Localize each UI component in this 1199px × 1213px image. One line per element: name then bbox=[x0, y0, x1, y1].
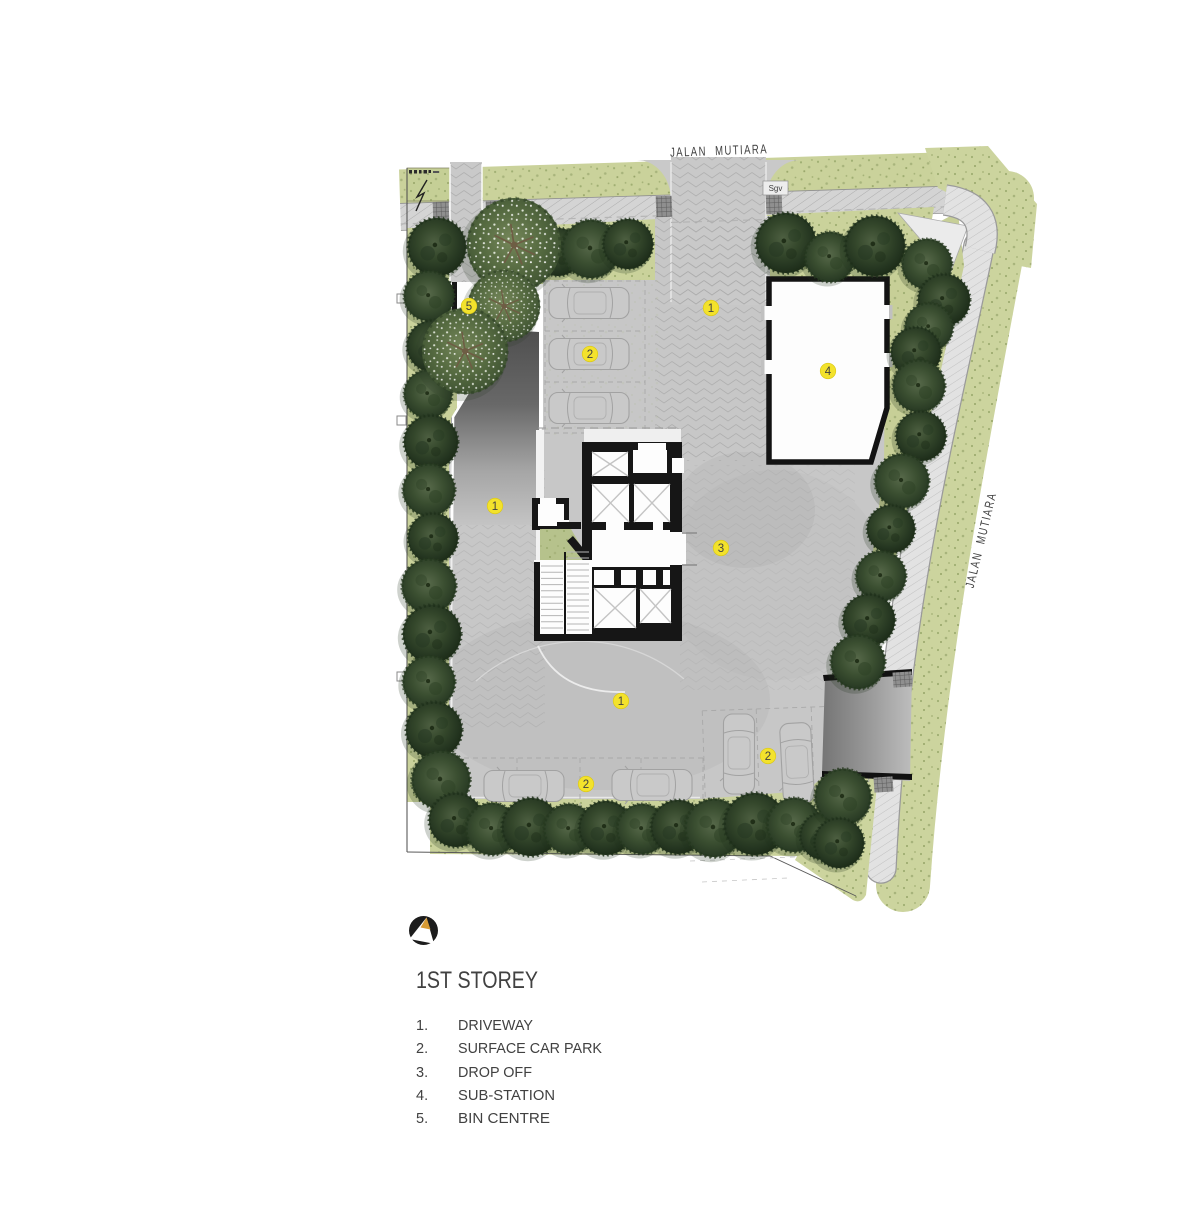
svg-text:4.: 4. bbox=[416, 1088, 428, 1104]
svg-text:DROP OFF: DROP OFF bbox=[458, 1065, 532, 1081]
svg-text:1.: 1. bbox=[416, 1018, 428, 1034]
svg-text:1: 1 bbox=[708, 303, 714, 315]
svg-text:1ST STOREY: 1ST STOREY bbox=[416, 967, 538, 994]
svg-text:3.: 3. bbox=[416, 1065, 428, 1081]
svg-text:4: 4 bbox=[825, 366, 832, 378]
svg-text:DRIVEWAY: DRIVEWAY bbox=[458, 1018, 533, 1034]
svg-text:2.: 2. bbox=[416, 1041, 428, 1057]
svg-text:Sgv: Sgv bbox=[769, 184, 783, 193]
svg-text:2: 2 bbox=[765, 751, 771, 763]
svg-text:BIN CENTRE: BIN CENTRE bbox=[458, 1111, 550, 1127]
svg-text:2: 2 bbox=[587, 349, 593, 361]
svg-text:5.: 5. bbox=[416, 1111, 428, 1127]
svg-text:1: 1 bbox=[492, 501, 498, 513]
svg-text:JALAN MUTIARA: JALAN MUTIARA bbox=[670, 141, 768, 159]
svg-text:1: 1 bbox=[618, 696, 624, 708]
svg-text:5: 5 bbox=[466, 301, 472, 313]
svg-text:SUB-STATION: SUB-STATION bbox=[458, 1088, 555, 1104]
svg-text:2: 2 bbox=[583, 779, 589, 791]
svg-text:3: 3 bbox=[718, 543, 724, 555]
svg-text:SURFACE CAR PARK: SURFACE CAR PARK bbox=[458, 1041, 602, 1057]
